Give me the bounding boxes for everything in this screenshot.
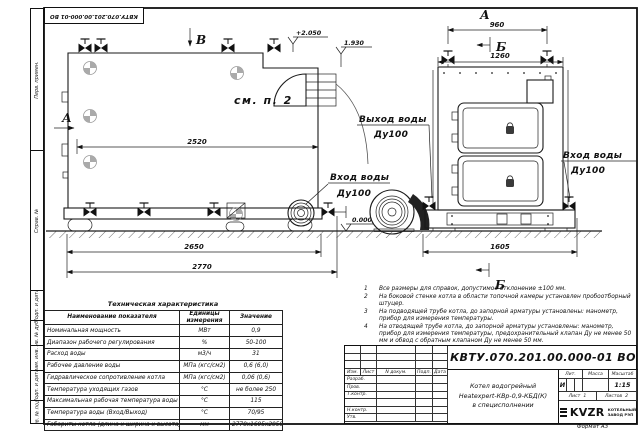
door-hinge [62,92,68,102]
furnace-door-lower [452,156,543,206]
valve-icon [541,51,554,65]
tech-row: Номинальная мощностьМВт0,9 [45,325,283,337]
inlet-flange-side [288,200,314,226]
view-arrow-a-side: А [54,111,74,128]
note-item: 1 Все размеры для справок, допустимое от… [364,286,632,293]
door-hinge [62,144,68,156]
svg-text:Вход воды: Вход воды [563,151,622,161]
svg-text:0.000: 0.000 [352,217,373,224]
svg-text:Вход воды: Вход воды [330,173,389,183]
note-item: 4 На отводящей трубе котла, до запорной … [364,324,632,345]
inlet-front-label: Вход воды Ду100 [561,151,638,198]
mass-header: Масса [583,370,609,379]
dim-base-length: 2650 [184,243,204,251]
flue-scroll [274,74,368,164]
svg-text:1.930: 1.930 [344,40,365,47]
margin-cell: Инв. № дубл. [31,321,43,346]
drain-valve-icon [84,203,97,217]
tech-table: Наименование показателя Единицы измерени… [44,310,283,431]
see-note-ref: см. п. 2 [234,94,293,107]
valve-icon [442,51,455,65]
lifting-point-icon [84,156,97,169]
svg-text:Выход воды: Выход воды [359,115,427,125]
margin-cell: Перв. примен. [31,9,43,151]
sheets-cell: Листов 2 [597,392,637,401]
valve-icon [222,39,235,53]
dim-front-base: 1605 [490,243,510,251]
svg-text:А: А [61,111,72,125]
title-block-right: Лит. Масса Масштаб И 1:15 Лист 1 Листов … [559,370,637,423]
ground-line [46,231,602,238]
inverted-designation-box: КВТУ.070.201.00.000-01 ВО [44,7,144,24]
format-note: Формат А3 [548,424,637,430]
valve-icon [79,39,92,53]
kvzr-logo-text: KVZR [570,406,605,419]
tech-row: Диапазон рабочего регулирования%50-100 [45,337,283,349]
view-label-a-front: А [479,8,490,22]
mass-value [583,379,609,392]
svg-text:В: В [195,33,206,47]
svg-text:Ду100: Ду100 [336,189,371,199]
sheet-cell: Лист 1 [559,392,597,401]
margin-cell: Взам. инв. № [31,346,43,371]
elevation-mark-zero: 0.000 [341,217,374,231]
rivet-dots [443,72,557,225]
margin-cell: Инв. № подл. [31,401,43,423]
tech-table-title: Техническая характеристика [44,300,282,308]
note-item: 2 На боковой стенке котла в области топо… [364,294,632,308]
svg-text:Ду100: Ду100 [373,130,408,140]
valve-icon [423,197,436,211]
elevation-mark-flue: 1.930 [336,40,372,67]
kvzr-bars-icon [560,408,567,417]
valve-icon [95,39,108,53]
furnace-door-upper [452,103,543,153]
tech-row: Максимальная рабочая температура воды°С1… [45,396,283,408]
inlet-side-label: Вход воды Ду100 [306,173,390,204]
view-arrow-b: В [190,28,206,47]
title-block-signature-grid: Изм. Лист N докум. Подп. Дата Разраб. Пр… [345,346,448,423]
lifting-point-icon [84,110,97,123]
drain-valve-icon [208,203,221,217]
tech-characteristics: Техническая характеристика Наименование … [44,300,282,431]
door-lock-icon [506,123,514,134]
lit-value: И [559,379,567,392]
tech-row: Расход водым3/ч31 [45,348,283,360]
boiler-engineering-drawing: { "top_designation": "КВТУ.070.201.00.00… [0,0,644,430]
margin-cell: Подп. и дата [31,371,43,401]
boiler-front-outline [438,67,563,210]
dim-top-valves: 960 [490,21,505,29]
tech-row: Рабочее давление водыМПа (кгс/см2)0,6 (6… [45,360,283,372]
company-logo: KVZR КОТЕЛЬНЫЙ ЗАВОД РЭП [559,401,637,423]
svg-text:+2.050: +2.050 [296,30,322,37]
valve-icon [563,197,576,211]
inverted-designation-text: КВТУ.070.201.00.000-01 ВО [50,13,138,19]
title-block-doc-name: Котел водогрейный Heatexpert-КВр-0,9-КБД… [448,370,559,423]
blower-fan [370,190,429,234]
elevation-mark-top: +2.050 [288,30,328,52]
outlet-label: Выход воды Ду100 [357,115,432,198]
lifting-point-icon [231,67,244,80]
margin-cell: Подп. и дата [31,291,43,321]
note-item: 3 На подводящей трубе котла, до запорной… [364,309,632,323]
dim-boiler-length: 2520 [187,138,207,146]
dim-overall-length: 2770 [192,263,212,271]
margin-cell: Справ. № [31,151,43,291]
boiler-front-view [370,51,576,234]
side-view-dimensions: 2520 2650 2770 +2.050 1.930 0.000 В [54,28,432,278]
drain-valve-icon [138,203,151,217]
lifting-point-icon [84,62,97,75]
valve-icon [268,39,281,53]
svg-text:Ду100: Ду100 [570,166,605,176]
front-view-dimensions: 960 1260 1605 А Б Б Вход воды Ду100 [423,8,638,292]
kvzr-caption: КОТЕЛЬНЫЙ ЗАВОД РЭП [608,407,637,417]
lit-header: Лит. [559,370,583,379]
scale-value: 1:15 [609,379,637,392]
notes-list: 1 Все размеры для справок, допустимое от… [364,286,632,346]
tech-row: Гидравлическое сопротивление котлаМПа (к… [45,372,283,384]
tech-row: Температура воды (Вход/Выход)°С70/95 [45,407,283,419]
stamp-margin: Перв. примен. Справ. № Подп. и дата Инв.… [30,8,44,424]
svg-text:Б: Б [495,40,506,54]
base-beam [64,208,322,219]
tech-row: Температура уходящих газов°Сне более 250 [45,384,283,396]
top-hatch [527,80,553,103]
title-block: Изм. Лист N докум. Подп. Дата Разраб. Пр… [344,345,637,424]
scale-header: Масштаб [609,370,637,379]
tech-header-row: Наименование показателя Единицы измерени… [45,311,283,325]
inlet-valve-icon [322,203,335,217]
title-block-designation: КВТУ.070.201.00.000-01 ВО [448,346,638,370]
tech-row: Габариты котла (длина х ширина х высота)… [45,419,283,431]
boiler-side-outline [68,53,318,208]
door-lock-icon [506,176,514,187]
boiler-side-view [62,39,368,231]
front-base [425,210,575,231]
